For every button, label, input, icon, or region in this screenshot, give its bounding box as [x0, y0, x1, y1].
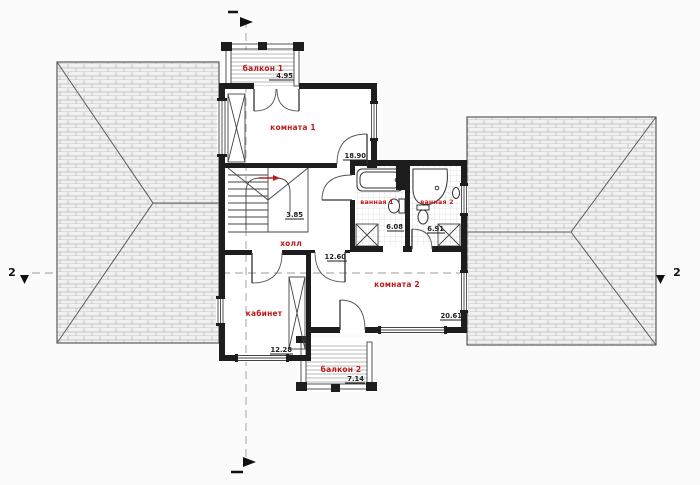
window-room1-right [370, 101, 378, 141]
balcony2-area: 7.14 [347, 375, 364, 383]
study-label: кабинет [246, 309, 283, 318]
bath2-label: ванная 2 [420, 199, 453, 206]
room2-label: комната 2 [374, 280, 420, 289]
toilet-bath2 [417, 205, 429, 224]
hall-label: холл [280, 239, 302, 248]
room1-area: 18.90 [345, 152, 367, 160]
window-room2-right [460, 270, 468, 313]
sink-bath2 [453, 188, 460, 199]
hall-area: 12.60 [325, 253, 347, 261]
balcony1-area: 4.95 [276, 72, 293, 80]
roof-right [467, 117, 656, 345]
room1-label: комната 1 [270, 123, 316, 132]
bath2-area: 6.91 [427, 225, 444, 233]
room2-area: 20.61 [441, 312, 463, 320]
bath1-area: 6.08 [386, 223, 403, 231]
bath1-label: ванная 1 [360, 199, 393, 206]
section-arrow-right [656, 275, 665, 284]
stairs-area: 3.85 [286, 211, 303, 219]
window-study-left [216, 296, 225, 326]
window-room2-bottom [378, 326, 447, 334]
floor-plan-canvas: балкон 1 4.95 комната 1 18.90 ванная 1 6… [0, 0, 700, 485]
section-arrow-top [240, 17, 253, 27]
balcony2-label: балкон 2 [321, 365, 362, 374]
window-bath2 [460, 183, 468, 216]
floor-plan-page: балкон 1 4.95 комната 1 18.90 ванная 1 6… [0, 0, 700, 485]
section-arrow-left [20, 275, 29, 284]
section-marker-left-label: 2 [8, 266, 16, 279]
window-room1-left [217, 98, 227, 157]
section-arrow-bottom [243, 457, 256, 467]
section-marker-right-label: 2 [673, 266, 681, 279]
roof-left [57, 62, 219, 343]
window-study-bottom [235, 354, 289, 362]
study-area: 12.28 [271, 346, 293, 354]
